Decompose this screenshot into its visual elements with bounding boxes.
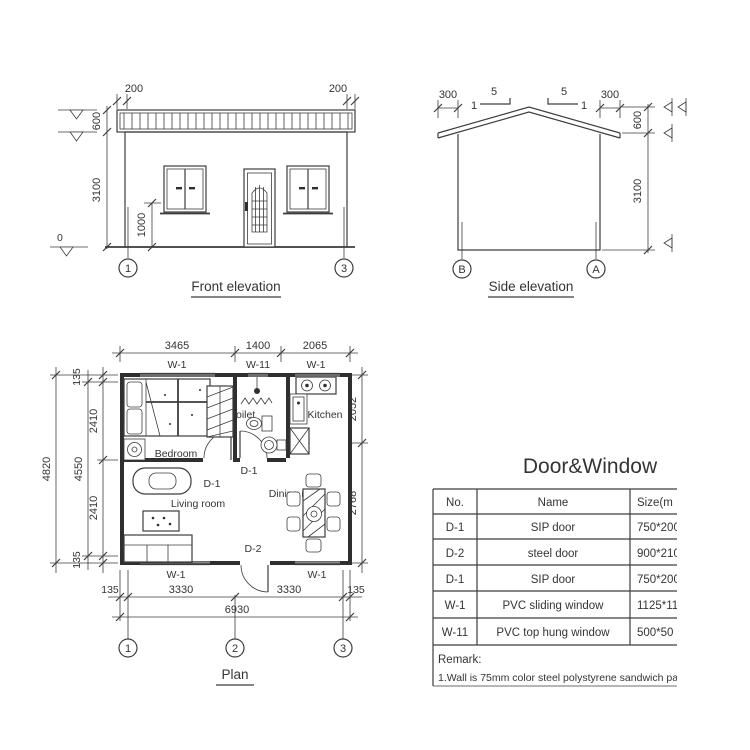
plan-axis-2-label: 2: [232, 643, 238, 655]
schedule-name-3: PVC sliding window: [503, 600, 605, 612]
front-axis-left-label: 1: [125, 263, 131, 275]
plan-axis-3: 3: [334, 639, 352, 657]
dining-table-symbol: [287, 474, 340, 552]
plan-dim-left-4550: 4550: [73, 457, 85, 481]
front-dim-overhang-right: 200: [329, 83, 359, 109]
plan-dim-bottom-3330-left: 3330: [169, 584, 193, 596]
front-sill-label: 1000: [136, 213, 148, 237]
front-axis-right-label: 3: [341, 263, 347, 275]
side-overhang-left-label: 300: [439, 89, 457, 101]
plan-dim-left: 135 2410 2410 135 4550 4820: [41, 367, 118, 573]
plan-dim-top-1: 3465: [165, 340, 189, 352]
schedule-size-1: 900*210: [637, 548, 680, 560]
schedule-row-1: D-2 steel door: [446, 548, 579, 560]
plan-window-label-top-2: W-11: [246, 359, 270, 371]
plan-dim-top-2: 1400: [246, 340, 270, 352]
front-dim-sill: 1000: [136, 199, 161, 251]
schedule-name-1: steel door: [528, 548, 579, 560]
schedule-col-size: Size(m: [637, 497, 673, 509]
side-slope-left-symbol: 5 1: [471, 86, 510, 112]
door-window-schedule: Door&Window No. Name Size(m 750*200 900*…: [433, 455, 690, 686]
schedule-no-1: D-2: [446, 548, 465, 560]
schedule-row-0: D-1 SIP door: [446, 522, 576, 534]
front-elevation-title: Front elevation: [191, 279, 280, 294]
plan-title: Plan: [221, 667, 248, 682]
plan-dim-bottom-135-left: 135: [101, 584, 119, 596]
plan-axis-2: 2: [226, 639, 244, 657]
side-dim-roof: 600: [632, 111, 644, 129]
plan-dim-bottom-135-right: 135: [347, 584, 365, 596]
schedule-no-0: D-1: [446, 522, 465, 534]
front-level-marks: 0: [50, 110, 97, 256]
schedule-name-2: SIP door: [531, 574, 576, 586]
schedule-no-3: W-1: [445, 600, 466, 612]
side-axis-right-label: A: [592, 264, 600, 276]
plan-dim-top: 3465 1400 2065 W-1 W-11 W-1: [112, 340, 358, 371]
front-axis-left: 1: [119, 207, 137, 277]
front-dim-wall: 3100: [91, 178, 103, 202]
plan-dim-left-2410-bottom: 2410: [88, 496, 100, 520]
front-window-right-symbol: [283, 166, 333, 214]
schedule-name-4: PVC top hung window: [496, 627, 610, 639]
coffee-table-symbol: [143, 511, 179, 531]
front-elevation-drawing: 1 3 600 3100 200 200 1000 0 Fro: [50, 83, 359, 297]
schedule-col-no: No.: [446, 497, 464, 509]
room-label-kitchen: Kitchen: [307, 409, 342, 421]
plan-dim-left-135-top: 135: [71, 368, 83, 386]
schedule-remark-title: Remark:: [438, 654, 481, 666]
front-overhang-left-label: 200: [125, 83, 143, 95]
basin-symbol: [261, 437, 286, 453]
schedule-name-0: SIP door: [531, 522, 576, 534]
bed-symbol: [124, 379, 210, 436]
front-window-left-symbol: [160, 166, 210, 214]
plan-window-label-bottom-1: W-1: [166, 569, 185, 581]
front-dim-left: 600 3100: [91, 106, 111, 251]
side-axis-left-label: B: [458, 264, 465, 276]
side-wall-outline: [458, 134, 600, 250]
schedule-size-4: 500*50: [637, 627, 673, 639]
schedule-size-0: 750*200: [637, 522, 680, 534]
side-slope-left-rise: 1: [471, 100, 477, 112]
schedule-remark: Remark: 1.Wall is 75mm color steel polys…: [438, 654, 690, 684]
plan-window-label-bottom-2: W-1: [307, 569, 326, 581]
schedule-size-2: 750*200: [637, 574, 680, 586]
drawing-sheet: 1 3 600 3100 200 200 1000 0 Fro: [0, 0, 750, 750]
plan-window-label-top-1: W-1: [167, 359, 186, 371]
schedule-no-4: W-11: [442, 627, 468, 639]
door-label-d1-toilet: D-1: [241, 465, 258, 477]
towel-rail-symbol: [241, 398, 272, 404]
fridge-symbol: [290, 428, 309, 454]
schedule-no-2: D-1: [446, 574, 465, 586]
plan-axis-3-label: 3: [340, 643, 346, 655]
plan-dim-left-4820: 4820: [41, 457, 53, 481]
side-dim-overhang-right: 300: [596, 89, 624, 118]
plan-dim-right-2768: 2768: [347, 491, 359, 515]
side-slope-right-run: 5: [561, 86, 567, 98]
side-slope-left-run: 5: [491, 86, 497, 98]
plan-dim-right-2052: 2052: [347, 397, 359, 421]
door-label-d1-bedroom: D-1: [204, 478, 221, 490]
side-dim-right: 600 3100: [602, 103, 655, 254]
side-slope-right-symbol: 5 1: [548, 86, 587, 112]
plan-dim-left-2410-top: 2410: [88, 409, 100, 433]
side-elevation-drawing: B A 300 300 5 1 5 1 600 3100: [434, 86, 686, 297]
schedule-row-4: W-11 PVC top hung window: [442, 627, 610, 639]
schedule-row-2: D-1 SIP door: [446, 574, 576, 586]
front-axis-right: 3: [335, 207, 353, 277]
tv-stand-symbol: [133, 468, 191, 494]
front-dim-overhang-left: 200: [113, 83, 143, 109]
side-slope-right-rise: 1: [581, 100, 587, 112]
front-roof-symbol: [117, 110, 355, 132]
front-overhang-right-label: 200: [329, 83, 347, 95]
side-roof-symbol: [438, 107, 620, 138]
plan-dim-bottom-3330-right: 3330: [277, 584, 301, 596]
plan-axis-1: 1: [119, 639, 137, 657]
wardrobe-symbol: [207, 386, 233, 437]
room-label-bedroom: Bedroom: [155, 448, 198, 460]
nightstand-symbol: [124, 439, 145, 460]
plan-dim-left-135-bottom: 135: [71, 551, 83, 569]
toilet-symbol: [247, 416, 273, 431]
plan-dim-top-3: 2065: [303, 340, 327, 352]
front-door-symbol: [244, 169, 275, 247]
front-level-zero-label: 0: [57, 232, 63, 244]
schedule-row-3: W-1 PVC sliding window: [445, 600, 605, 612]
schedule-size-3: 1125*11: [637, 600, 678, 612]
stove-symbol: [296, 377, 336, 394]
door-label-d2: D-2: [245, 543, 262, 555]
plan-axis-1-label: 1: [125, 643, 131, 655]
schedule-remark-line1: 1.Wall is 75mm color steel polystyrene s…: [438, 672, 690, 684]
plan-window-label-top-3: W-1: [306, 359, 325, 371]
schedule-title: Door&Window: [523, 455, 658, 478]
kitchen-sink-symbol: [290, 394, 307, 424]
side-elevation-title: Side elevation: [489, 279, 574, 294]
side-level-marks: [664, 98, 686, 252]
sofa-symbol: [124, 535, 192, 562]
architectural-drawing: 1 3 600 3100 200 200 1000 0 Fro: [0, 0, 750, 750]
side-overhang-right-label: 300: [601, 89, 619, 101]
front-dim-roof: 600: [91, 112, 103, 130]
plan-dim-bottom-total: 6930: [225, 604, 249, 616]
floor-plan-drawing: Bedroom Toilet Kitchen Living room Dinin…: [41, 340, 368, 685]
side-dim-wall: 3100: [632, 179, 644, 203]
schedule-col-name: Name: [538, 497, 569, 509]
plan-door-d2-symbol: [241, 565, 268, 592]
room-label-living: Living room: [171, 498, 226, 510]
w11-vent-symbol: [254, 377, 260, 394]
side-dim-overhang-left: 300: [434, 89, 462, 118]
